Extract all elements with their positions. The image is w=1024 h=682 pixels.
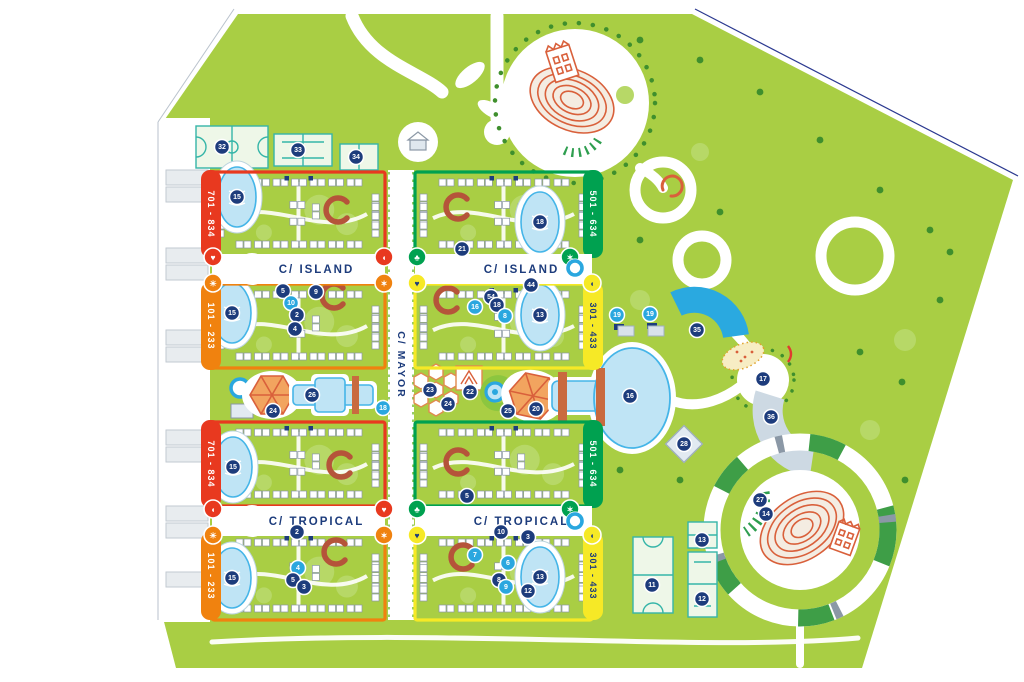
marker-number: 9 <box>504 584 508 591</box>
fruit-icon: ◖ <box>204 500 222 518</box>
map-marker-24[interactable]: 24 <box>441 397 456 412</box>
svg-text:◖: ◖ <box>589 279 594 289</box>
marker-number: 15 <box>228 575 236 582</box>
marker-number: 34 <box>352 154 360 161</box>
map-marker-26[interactable]: 26 <box>305 388 320 403</box>
marker-number: 4 <box>296 565 300 572</box>
marker-number: 14 <box>762 511 770 518</box>
marker-number: 4 <box>293 326 297 333</box>
map-marker-28[interactable]: 28 <box>677 437 692 452</box>
street-4: C/ MAYOR <box>395 331 407 399</box>
block-range-label: 701 - 834 <box>206 440 216 487</box>
map-marker-19[interactable]: 19 <box>643 307 658 322</box>
svg-text:✶: ✶ <box>380 279 387 289</box>
map-marker-15[interactable]: 15 <box>230 190 245 205</box>
map-marker-16[interactable]: 16 <box>468 300 483 315</box>
map-marker-10[interactable]: 10 <box>494 525 509 540</box>
fruit-icon: ◖ <box>583 274 601 292</box>
kiosk-house <box>398 122 438 162</box>
block-range-label: 101 - 233 <box>206 552 216 599</box>
marker-number: 25 <box>504 408 512 415</box>
svg-text:◖: ◖ <box>381 253 386 263</box>
marker-number: 6 <box>506 560 510 567</box>
marker-number: 19 <box>646 311 654 318</box>
map-marker-4[interactable]: 4 <box>288 322 303 337</box>
fruit-icon: ♣ <box>408 500 426 518</box>
map-marker-9[interactable]: 9 <box>309 285 324 300</box>
marker-number: 16 <box>471 304 479 311</box>
marker-number: 33 <box>294 147 302 154</box>
block-range-label: 701 - 834 <box>206 190 216 237</box>
map-marker-14[interactable]: 14 <box>759 507 774 522</box>
marker-number: 12 <box>698 596 706 603</box>
map-marker-35[interactable]: 35 <box>690 323 705 338</box>
map-marker-17[interactable]: 17 <box>756 372 771 387</box>
map-marker-18[interactable]: 18 <box>376 401 391 416</box>
marker-number: 15 <box>229 464 237 471</box>
map-marker-15[interactable]: 15 <box>225 571 240 586</box>
map-marker-8[interactable]: 8 <box>498 309 513 324</box>
svg-text:◖: ◖ <box>210 505 215 515</box>
svg-text:◖: ◖ <box>589 531 594 541</box>
map-marker-2[interactable]: 2 <box>290 525 305 540</box>
map-marker-3[interactable]: 3 <box>297 580 312 595</box>
svg-text:♥: ♥ <box>414 531 419 541</box>
marker-number: 13 <box>698 537 706 544</box>
marker-number: 18 <box>493 302 501 309</box>
marker-number: 3 <box>526 534 530 541</box>
map-marker-27[interactable]: 27 <box>753 493 768 508</box>
marker-number: 16 <box>626 393 634 400</box>
map-marker-16[interactable]: 16 <box>623 389 638 404</box>
svg-text:♥: ♥ <box>414 279 419 289</box>
marker-number: 5 <box>281 288 285 295</box>
svg-text:♥: ♥ <box>210 253 215 263</box>
resort-map: 701 - 834501 - 634101 - 233301 - 433701 … <box>0 0 1024 682</box>
map-marker-13[interactable]: 13 <box>533 308 548 323</box>
marker-number: 10 <box>287 300 295 307</box>
map-marker-36[interactable]: 36 <box>764 410 779 425</box>
marker-number: 44 <box>527 282 535 289</box>
block-range-label: 501 - 634 <box>588 190 598 237</box>
marker-number: 13 <box>536 574 544 581</box>
fruit-icon: ✶ <box>375 526 393 544</box>
marker-number: 18 <box>536 219 544 226</box>
marker-number: 3 <box>302 584 306 591</box>
map-marker-34[interactable]: 34 <box>349 150 364 165</box>
map-marker-32[interactable]: 32 <box>215 140 230 155</box>
marker-number: 27 <box>756 497 764 504</box>
marker-number: 28 <box>680 441 688 448</box>
block-range-label: 301 - 433 <box>588 302 598 349</box>
fruit-icon: ♥ <box>408 274 426 292</box>
map-marker-3[interactable]: 3 <box>521 530 536 545</box>
map-marker-23[interactable]: 23 <box>423 383 438 398</box>
fruit-icon: ☀ <box>204 274 222 292</box>
marker-number: 7 <box>473 552 477 559</box>
block-range-label: 301 - 433 <box>588 552 598 599</box>
map-marker-15[interactable]: 15 <box>226 460 241 475</box>
street-0: C/ ISLAND <box>212 253 385 285</box>
map-marker-9[interactable]: 9 <box>499 580 514 595</box>
map-marker-7[interactable]: 7 <box>468 548 483 563</box>
street-label: C/ TROPICAL <box>269 516 364 528</box>
map-marker-33[interactable]: 33 <box>291 143 306 158</box>
svg-text:♣: ♣ <box>414 505 420 515</box>
fruit-icon: ♣ <box>408 248 426 266</box>
fruit-icon: ♥ <box>375 500 393 518</box>
svg-text:☀: ☀ <box>209 279 217 289</box>
map-marker-24[interactable]: 24 <box>266 404 281 419</box>
marker-number: 10 <box>497 529 505 536</box>
marker-number: 20 <box>532 406 540 413</box>
fruit-icon: ✶ <box>375 274 393 292</box>
marker-number: 2 <box>295 529 299 536</box>
map-marker-22[interactable]: 22 <box>463 385 478 400</box>
svg-text:☀: ☀ <box>209 531 217 541</box>
map-marker-12[interactable]: 12 <box>521 584 536 599</box>
marker-number: 12 <box>524 588 532 595</box>
map-marker-12[interactable]: 12 <box>695 592 710 607</box>
marker-number: 17 <box>759 376 767 383</box>
marker-number: 24 <box>444 401 452 408</box>
map-marker-13[interactable]: 13 <box>533 570 548 585</box>
map-marker-21[interactable]: 21 <box>455 242 470 257</box>
fruit-icon: ♥ <box>204 248 222 266</box>
marker-number: 5 <box>465 493 469 500</box>
marker-number: 36 <box>767 414 775 421</box>
svg-text:♥: ♥ <box>381 505 386 515</box>
block-range-label: 101 - 233 <box>206 302 216 349</box>
marker-number: 24 <box>269 408 277 415</box>
map-marker-25[interactable]: 25 <box>501 404 516 419</box>
marker-number: 19 <box>613 312 621 319</box>
map-marker-18[interactable]: 18 <box>533 215 548 230</box>
marker-number: 15 <box>228 310 236 317</box>
marker-number: 11 <box>648 582 656 589</box>
map-marker-15[interactable]: 15 <box>225 306 240 321</box>
marker-number: 15 <box>233 194 241 201</box>
map-marker-5[interactable]: 5 <box>460 489 475 504</box>
marker-number: 23 <box>426 387 434 394</box>
map-marker-11[interactable]: 11 <box>645 578 660 593</box>
map-marker-2[interactable]: 2 <box>290 308 305 323</box>
street-label: C/ MAYOR <box>395 331 407 399</box>
map-marker-13[interactable]: 13 <box>695 533 710 548</box>
map-marker-6[interactable]: 6 <box>501 556 516 571</box>
marker-number: 18 <box>379 405 387 412</box>
street-label: C/ ISLAND <box>484 264 560 276</box>
fruit-icon: ◖ <box>583 526 601 544</box>
marker-number: 13 <box>536 312 544 319</box>
marker-number: 35 <box>693 327 701 334</box>
fruit-icon: ♥ <box>408 526 426 544</box>
fruit-icon: ◖ <box>375 248 393 266</box>
marker-number: 5 <box>291 577 295 584</box>
map-marker-20[interactable]: 20 <box>529 402 544 417</box>
svg-text:✶: ✶ <box>380 531 387 541</box>
map-marker-44[interactable]: 44 <box>524 278 539 293</box>
marker-number: 32 <box>218 144 226 151</box>
marker-number: 26 <box>308 392 316 399</box>
map-marker-19[interactable]: 19 <box>610 308 625 323</box>
fruit-icon: ☀ <box>204 526 222 544</box>
svg-text:♣: ♣ <box>414 253 420 263</box>
marker-number: 21 <box>458 246 466 253</box>
street-label: C/ TROPICAL <box>474 516 569 528</box>
map-canvas: 701 - 834501 - 634101 - 233301 - 433701 … <box>0 0 1024 682</box>
marker-number: 22 <box>466 389 474 396</box>
marker-number: 9 <box>314 289 318 296</box>
life-ring-icon <box>566 259 585 278</box>
block-range-label: 501 - 634 <box>588 440 598 487</box>
street-label: C/ ISLAND <box>279 264 355 276</box>
marker-number: 2 <box>295 312 299 319</box>
marker-number: 8 <box>503 313 507 320</box>
life-ring-icon <box>566 512 585 531</box>
